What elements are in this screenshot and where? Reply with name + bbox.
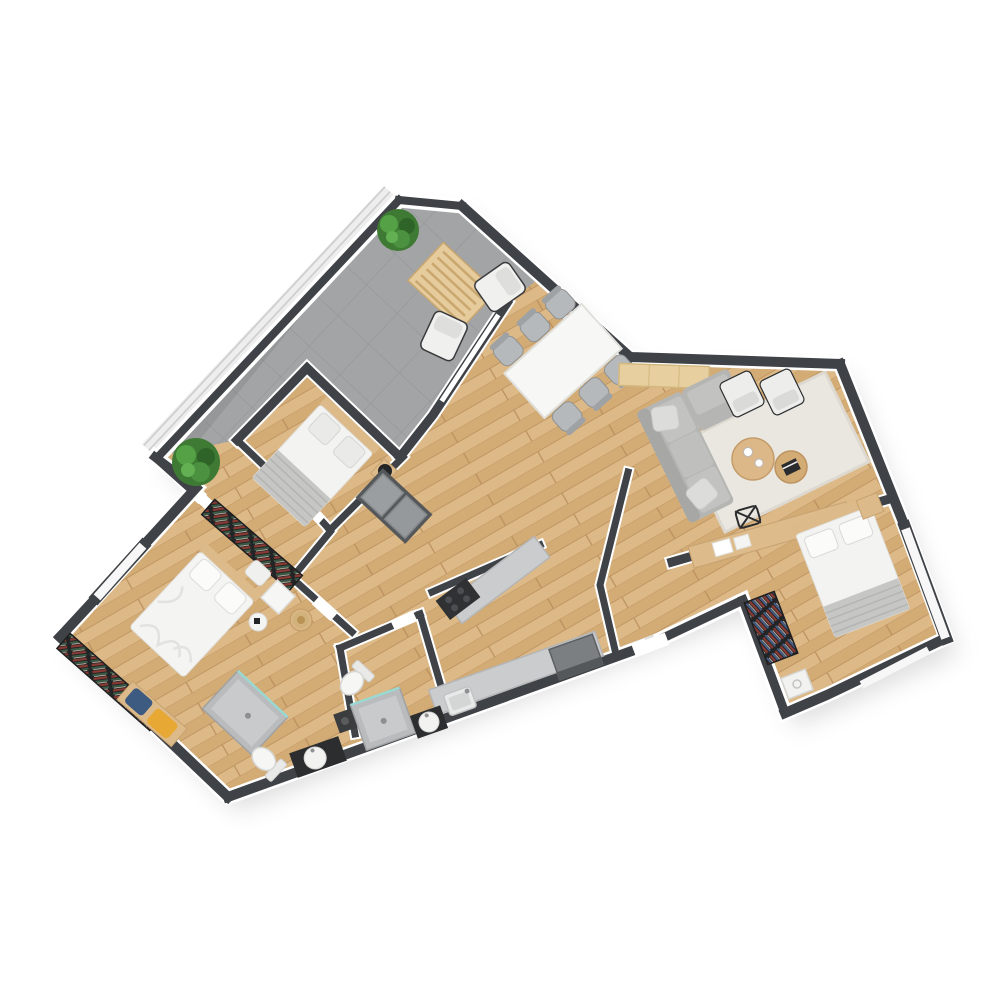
decor-tray xyxy=(249,613,267,631)
entry-door xyxy=(640,641,661,649)
coffee-cup xyxy=(744,448,753,457)
round-coffee-table-large xyxy=(732,438,774,480)
floor-plan-canvas xyxy=(0,0,1000,1000)
round-coffee-table-small xyxy=(775,451,807,483)
floor-plan-stage xyxy=(0,0,1000,1000)
potted-plant-top xyxy=(377,209,419,251)
potted-plant-left xyxy=(172,438,220,486)
bathroom-hall-door xyxy=(397,617,410,623)
stool-with-straw-hat xyxy=(290,609,312,631)
coffee-cup xyxy=(755,459,763,467)
